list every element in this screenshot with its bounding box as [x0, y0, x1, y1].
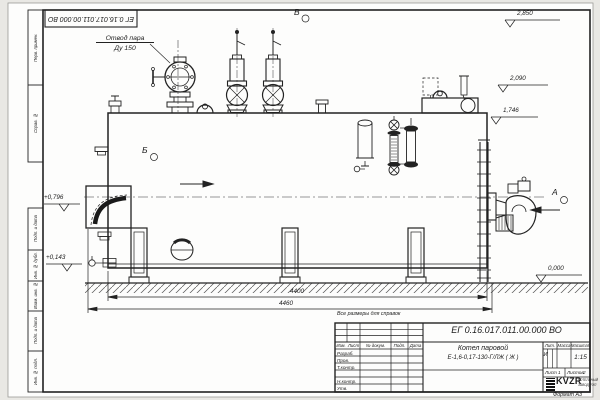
view-label-a: А: [552, 188, 558, 197]
title-name-line1: Котел паровой: [424, 345, 542, 353]
row-razrab: Разраб.: [337, 351, 354, 356]
dimension-4460: 4460: [266, 301, 306, 308]
elevation-0143: +0,143: [46, 255, 65, 262]
margin-col-inv-dubl: Инв. № дубл.: [28, 250, 43, 281]
lit-value: И: [543, 352, 548, 358]
title-name-line2: Е-1,6-0,17-130-Г/ЛЖ ( Ж ): [424, 355, 542, 362]
margin-col-perv-primen: Перв. примен.: [28, 10, 43, 85]
scale-value: 1:15: [571, 354, 590, 361]
elevation-0000: 0,000: [548, 266, 564, 273]
col-header-list: Лист: [347, 344, 360, 349]
margin-col-vzam-inv: Взам. инв. №: [28, 281, 43, 311]
reference-note: Все размеры для справок: [337, 312, 400, 318]
callout-steam-outlet-line1: Отвод пара: [96, 35, 154, 43]
row-tkontr: Т.контр.: [337, 365, 356, 370]
margin-col-sprav-no: Справ. №: [28, 85, 43, 162]
col-header-doc: № докум.: [360, 344, 391, 349]
view-label-b: Б: [142, 146, 148, 155]
scale-label: Масштаб: [571, 344, 590, 349]
sheets-value: 2: [583, 370, 586, 375]
sheets-label: Листов: [567, 370, 584, 375]
drawing-sheet: ЕГ 0.16.017.011.00.000 ВО Перв. примен. …: [0, 0, 600, 400]
title-doc-number: ЕГ 0.16.017.011.00.000 ВО: [424, 326, 589, 336]
lit-label: Лит.: [543, 344, 557, 349]
elevation-2850: 2,850: [517, 11, 533, 18]
margin-col-podp-data-1: Подп. и дата: [28, 208, 43, 250]
elevation-1746: 1,746: [503, 108, 519, 115]
col-header-izm: Изм.: [335, 344, 347, 349]
mass-label: Масса: [557, 344, 571, 349]
col-header-podp: Подп.: [391, 344, 408, 349]
row-prov: Пров.: [337, 358, 349, 363]
col-header-data: Дата: [408, 344, 423, 349]
elevation-2090: 2,090: [510, 76, 526, 83]
dimension-4400: 4400: [277, 289, 317, 296]
kvzr-logo-icon: [546, 378, 555, 391]
margin-col-inv-podl: Инв. № подл.: [28, 351, 43, 392]
kvzr-logo-sub2: ЗАВОД РЭП: [578, 384, 596, 388]
sheet-paper: [8, 3, 593, 397]
callout-steam-outlet-line2: Ду 150: [96, 45, 154, 52]
ground-hatching: [85, 283, 588, 293]
row-utv: Утв.: [337, 386, 347, 391]
elevation-0796: +0,796: [44, 195, 63, 202]
row-nkontr: Н.контр.: [337, 379, 356, 384]
view-label-v: В: [294, 8, 300, 17]
kvzr-logo-sub1: КОТЕЛЬНЫЙ: [578, 379, 598, 383]
margin-col-podp-data-2: Подп. и дата: [28, 311, 43, 351]
sheet-value: 1: [558, 370, 561, 375]
format-note: Формат А3: [553, 393, 582, 399]
sheet-label: Лист: [545, 370, 557, 375]
boiler-general-view-drawing: [0, 0, 600, 400]
top-stamp-doc-number: ЕГ 0.16.017.011.00.000 ВО: [45, 10, 137, 27]
